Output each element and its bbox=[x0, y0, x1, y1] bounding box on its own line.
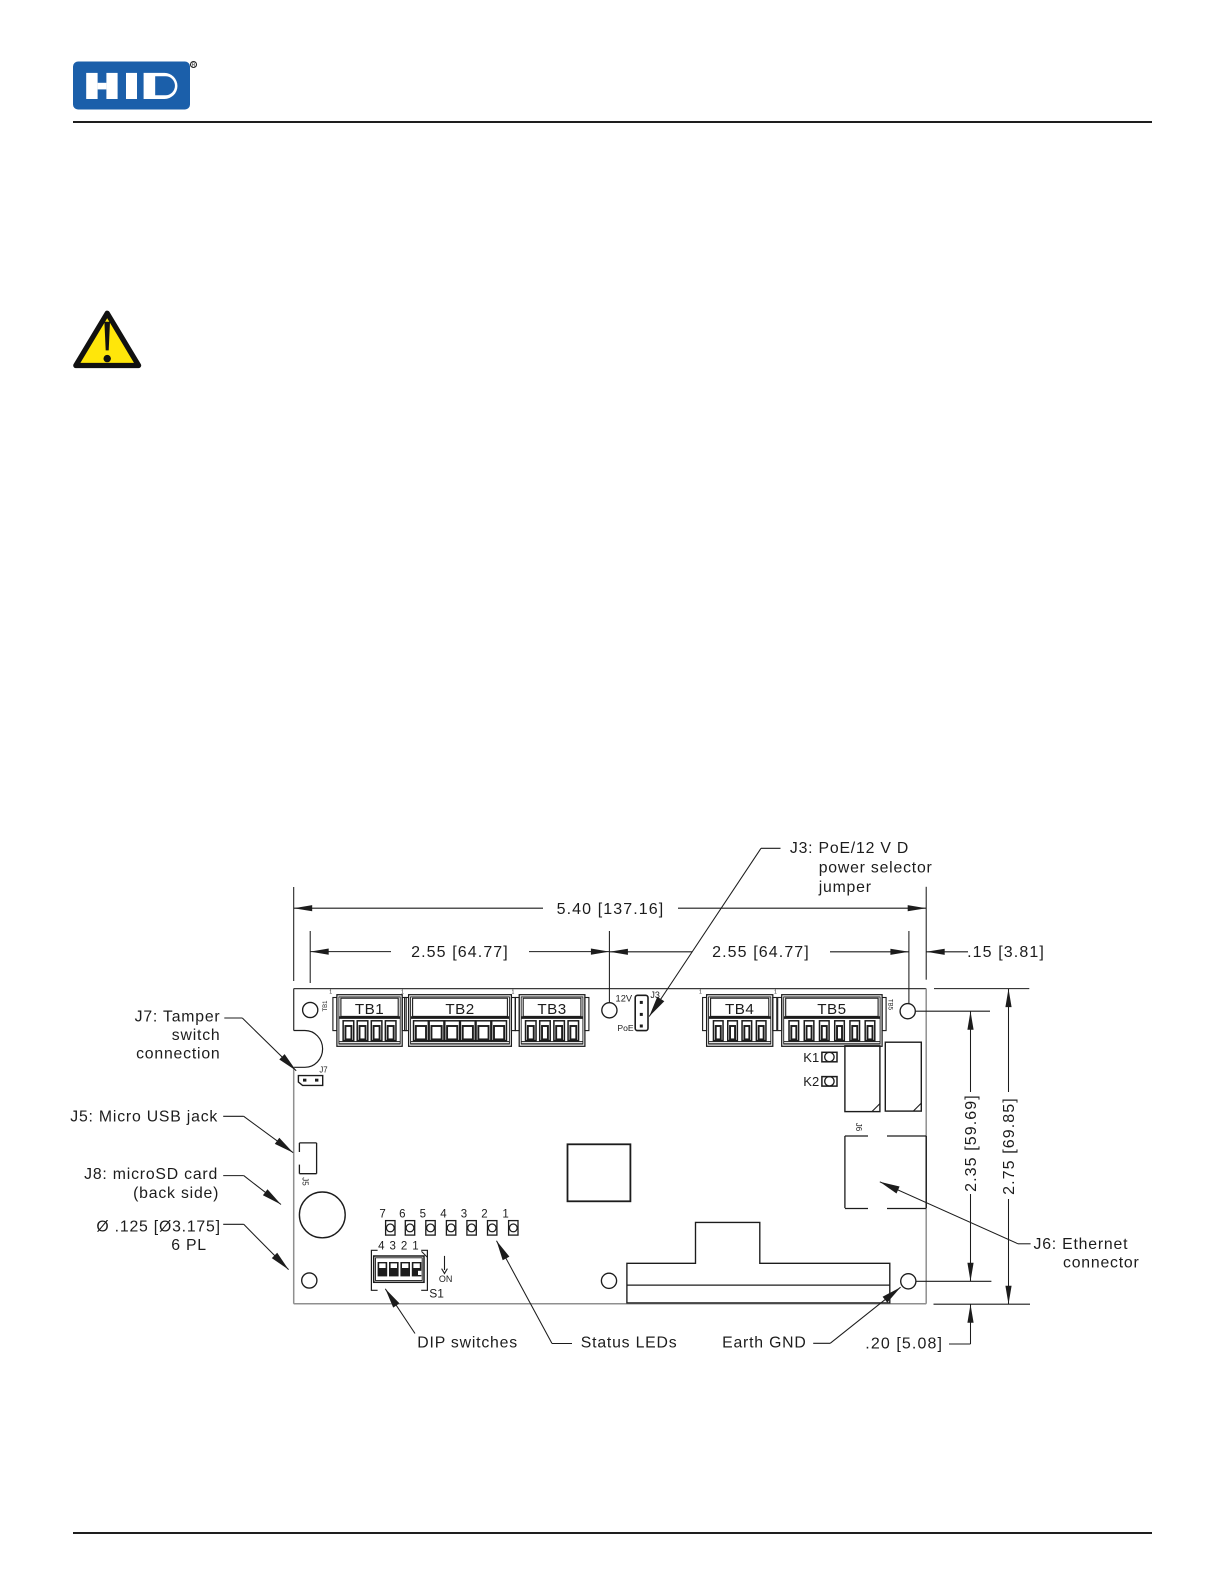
svg-text:1: 1 bbox=[512, 990, 515, 996]
svg-text:PoE: PoE bbox=[617, 1023, 634, 1033]
svg-text:3: 3 bbox=[389, 1240, 395, 1252]
svg-text:DIP switches: DIP switches bbox=[417, 1335, 518, 1352]
svg-text:2.55 [64.77]: 2.55 [64.77] bbox=[411, 944, 509, 961]
svg-text:4: 4 bbox=[440, 1208, 447, 1220]
svg-text:J5: Micro USB jack: J5: Micro USB jack bbox=[70, 1108, 218, 1125]
svg-text:Earth GND: Earth GND bbox=[722, 1335, 806, 1352]
svg-text:TB5: TB5 bbox=[886, 999, 892, 1011]
svg-text:(back side): (back side) bbox=[133, 1185, 219, 1202]
svg-text:6: 6 bbox=[399, 1208, 405, 1220]
svg-text:R: R bbox=[192, 62, 196, 68]
svg-text:K2: K2 bbox=[803, 1074, 819, 1089]
svg-text:3: 3 bbox=[461, 1208, 467, 1220]
svg-text:TB5: TB5 bbox=[817, 1001, 846, 1018]
svg-text:TB2: TB2 bbox=[445, 1001, 474, 1018]
svg-text:1: 1 bbox=[401, 990, 404, 996]
svg-text:power selector: power selector bbox=[819, 860, 933, 877]
svg-text:J8: microSD card: J8: microSD card bbox=[84, 1166, 218, 1183]
svg-text:1: 1 bbox=[329, 990, 332, 996]
svg-text:J3: PoE/12 V D: J3: PoE/12 V D bbox=[790, 840, 909, 857]
svg-text:.15 [3.81]: .15 [3.81] bbox=[967, 944, 1045, 961]
svg-text:2.75 [69.85]: 2.75 [69.85] bbox=[1001, 1097, 1018, 1195]
svg-text:1: 1 bbox=[774, 990, 777, 996]
svg-text:J5: J5 bbox=[301, 1177, 310, 1186]
svg-text:1: 1 bbox=[412, 1240, 418, 1252]
svg-text:TB1: TB1 bbox=[355, 1001, 384, 1018]
svg-text:J7: J7 bbox=[319, 1066, 327, 1075]
svg-text:TB3: TB3 bbox=[537, 1001, 566, 1018]
svg-text:S1: S1 bbox=[429, 1287, 444, 1301]
svg-text:7: 7 bbox=[379, 1208, 385, 1220]
svg-text:1: 1 bbox=[502, 1208, 508, 1220]
svg-text:K1: K1 bbox=[803, 1050, 819, 1065]
svg-text:4: 4 bbox=[378, 1240, 385, 1252]
svg-text:Status LEDs: Status LEDs bbox=[581, 1335, 678, 1352]
svg-text:jumper: jumper bbox=[818, 879, 872, 896]
svg-text:J7: Tamper: J7: Tamper bbox=[135, 1009, 221, 1026]
svg-text:1: 1 bbox=[699, 990, 702, 996]
svg-text:TB4: TB4 bbox=[725, 1001, 754, 1018]
svg-text:connector: connector bbox=[1063, 1254, 1140, 1271]
svg-text:TB1: TB1 bbox=[323, 1000, 329, 1012]
svg-text:J6: J6 bbox=[854, 1123, 863, 1132]
svg-text:2.35 [59.69]: 2.35 [59.69] bbox=[963, 1094, 980, 1192]
svg-text:2: 2 bbox=[401, 1240, 407, 1252]
svg-text:J6: Ethernet: J6: Ethernet bbox=[1034, 1236, 1129, 1253]
svg-text:connection: connection bbox=[136, 1046, 220, 1063]
svg-text:ON: ON bbox=[439, 1274, 453, 1284]
svg-text:switch: switch bbox=[172, 1027, 221, 1044]
svg-text:2.55 [64.77]: 2.55 [64.77] bbox=[712, 944, 810, 961]
svg-text:.20 [5.08]: .20 [5.08] bbox=[865, 1336, 943, 1353]
svg-text:12V: 12V bbox=[616, 994, 633, 1004]
svg-text:5: 5 bbox=[420, 1208, 426, 1220]
svg-text:2: 2 bbox=[481, 1208, 487, 1220]
svg-text:6 PL: 6 PL bbox=[171, 1237, 207, 1254]
svg-text:Ø .125 [Ø3.175]: Ø .125 [Ø3.175] bbox=[96, 1219, 220, 1236]
svg-text:5.40 [137.16]: 5.40 [137.16] bbox=[557, 901, 665, 918]
